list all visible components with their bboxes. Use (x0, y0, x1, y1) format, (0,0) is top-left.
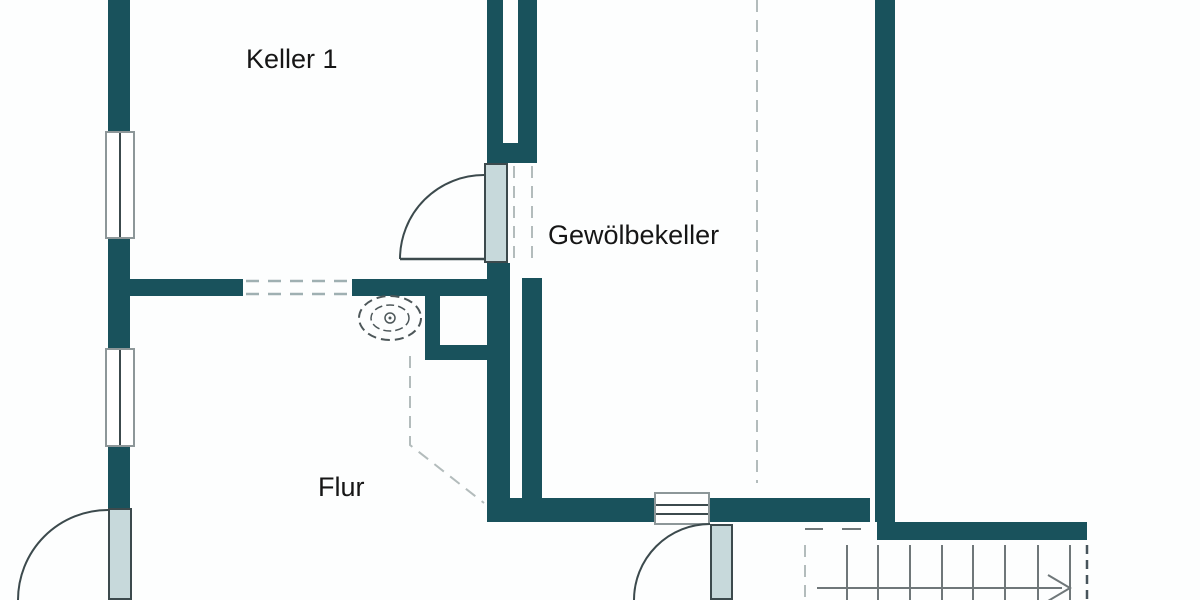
door-swing-arc-left-exterior (18, 510, 108, 600)
room-label-gewoelbekeller: Gewölbekeller (548, 220, 719, 251)
basin-drain-dot (389, 317, 392, 320)
room-label-flur: Flur (318, 472, 365, 503)
room-label-keller1: Keller 1 (246, 44, 338, 75)
door-swing-arc-gewoelbekeller (400, 175, 484, 259)
door-swing-arc-flur-south (634, 524, 710, 600)
floor-plan-canvas: Keller 1 Gewölbekeller Flur (0, 0, 1200, 600)
linework-layer (0, 0, 1200, 600)
flur-boundary-dashed-line (410, 356, 484, 503)
